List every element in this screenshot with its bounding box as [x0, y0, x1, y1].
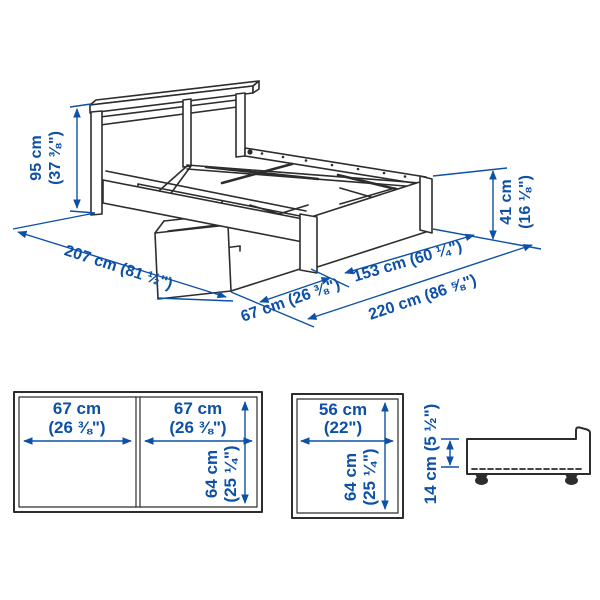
svg-text:(37 ⅜"): (37 ⅜")	[47, 131, 64, 185]
label-right-box-width-l2: (26 ⅜")	[169, 418, 226, 437]
svg-text:(25 ¼"): (25 ¼")	[221, 445, 240, 502]
label-single-box-width-l1: 56 cm	[319, 400, 367, 419]
product-dimension-diagram: 95 cm (37 ⅜") 207 cm (81 ½") 67 cm (26 ⅜…	[0, 0, 600, 600]
svg-text:41 cm: 41 cm	[498, 179, 515, 224]
svg-text:14 cm (5 ½"): 14 cm (5 ½")	[421, 404, 440, 505]
single-storage-box-top-view: 56 cm (22") 64 cm (25 ¼")	[292, 394, 403, 518]
label-headboard-height: 95 cm (37 ⅜")	[28, 131, 64, 185]
label-left-box-width-l1: 67 cm	[53, 399, 101, 418]
label-right-box-width-l1: 67 cm	[174, 399, 222, 418]
label-left-box-width-l2: (26 ⅜")	[48, 418, 105, 437]
label-single-box-depth: 64 cm (25 ¼")	[341, 448, 379, 505]
label-total-width: 220 cm (86 ⅝")	[367, 272, 479, 324]
svg-text:(16 ⅛"): (16 ⅛")	[517, 175, 534, 229]
label-double-box-depth: 64 cm (25 ¼")	[202, 445, 240, 502]
label-box-height: 14 cm (5 ½")	[421, 404, 440, 505]
svg-text:64 cm: 64 cm	[202, 450, 221, 498]
box-side-outline	[467, 427, 590, 474]
storage-box-side-view: 14 cm (5 ½")	[421, 404, 590, 505]
svg-text:95 cm: 95 cm	[28, 135, 45, 180]
svg-text:220 cm (86 ⅝"): 220 cm (86 ⅝")	[367, 272, 479, 324]
svg-text:(25 ¼"): (25 ¼")	[360, 448, 379, 505]
label-single-box-width-l2: (22")	[324, 418, 362, 437]
svg-text:64 cm: 64 cm	[341, 453, 360, 501]
caster-wheels	[475, 474, 578, 485]
far-side-rail	[245, 148, 426, 185]
double-storage-box-top-view: 67 cm (26 ⅜") 67 cm (26 ⅜") 64 cm (25 ¼"…	[14, 392, 262, 512]
label-footboard-height: 41 cm (16 ⅛")	[498, 175, 534, 229]
